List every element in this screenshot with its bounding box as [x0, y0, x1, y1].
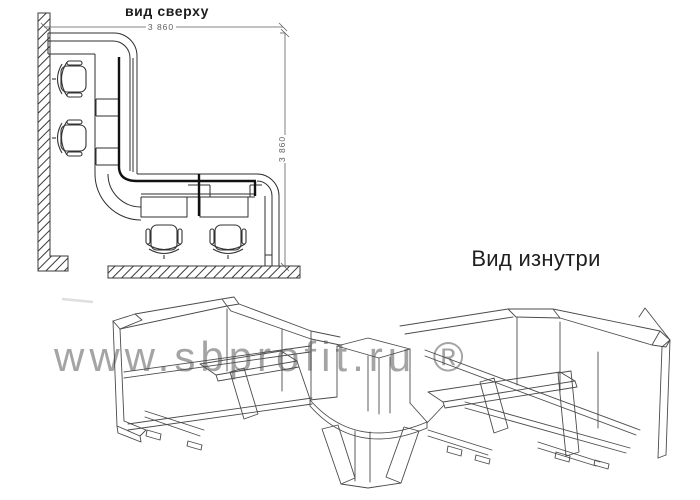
height-dimension-label: 3 860: [277, 136, 287, 162]
dimension-lines: 3 860 3 860: [41, 22, 289, 271]
office-chair: [52, 61, 86, 97]
reception-desk-plan: [48, 33, 279, 266]
office-chair: [146, 225, 182, 259]
office-chair: [210, 225, 246, 259]
office-chair: [52, 120, 86, 156]
wall-left: [38, 13, 68, 271]
top-view-drawing: вид сверху: [38, 3, 300, 278]
inside-view-title: Вид изнутри: [471, 246, 600, 271]
furniture-drawing-page: www.sbprofit.ru ® вид сверху: [0, 0, 700, 500]
drawing-canvas: www.sbprofit.ru ® вид сверху: [0, 0, 700, 500]
print-smudge: [62, 299, 93, 302]
reception-desk-3d: [113, 297, 670, 488]
wall-bottom: [108, 266, 300, 278]
top-view-title: вид сверху: [125, 3, 209, 19]
office-chairs-plan: [52, 61, 246, 259]
counter-top-edge: [119, 57, 256, 216]
width-dimension-label: 3 860: [148, 22, 174, 32]
